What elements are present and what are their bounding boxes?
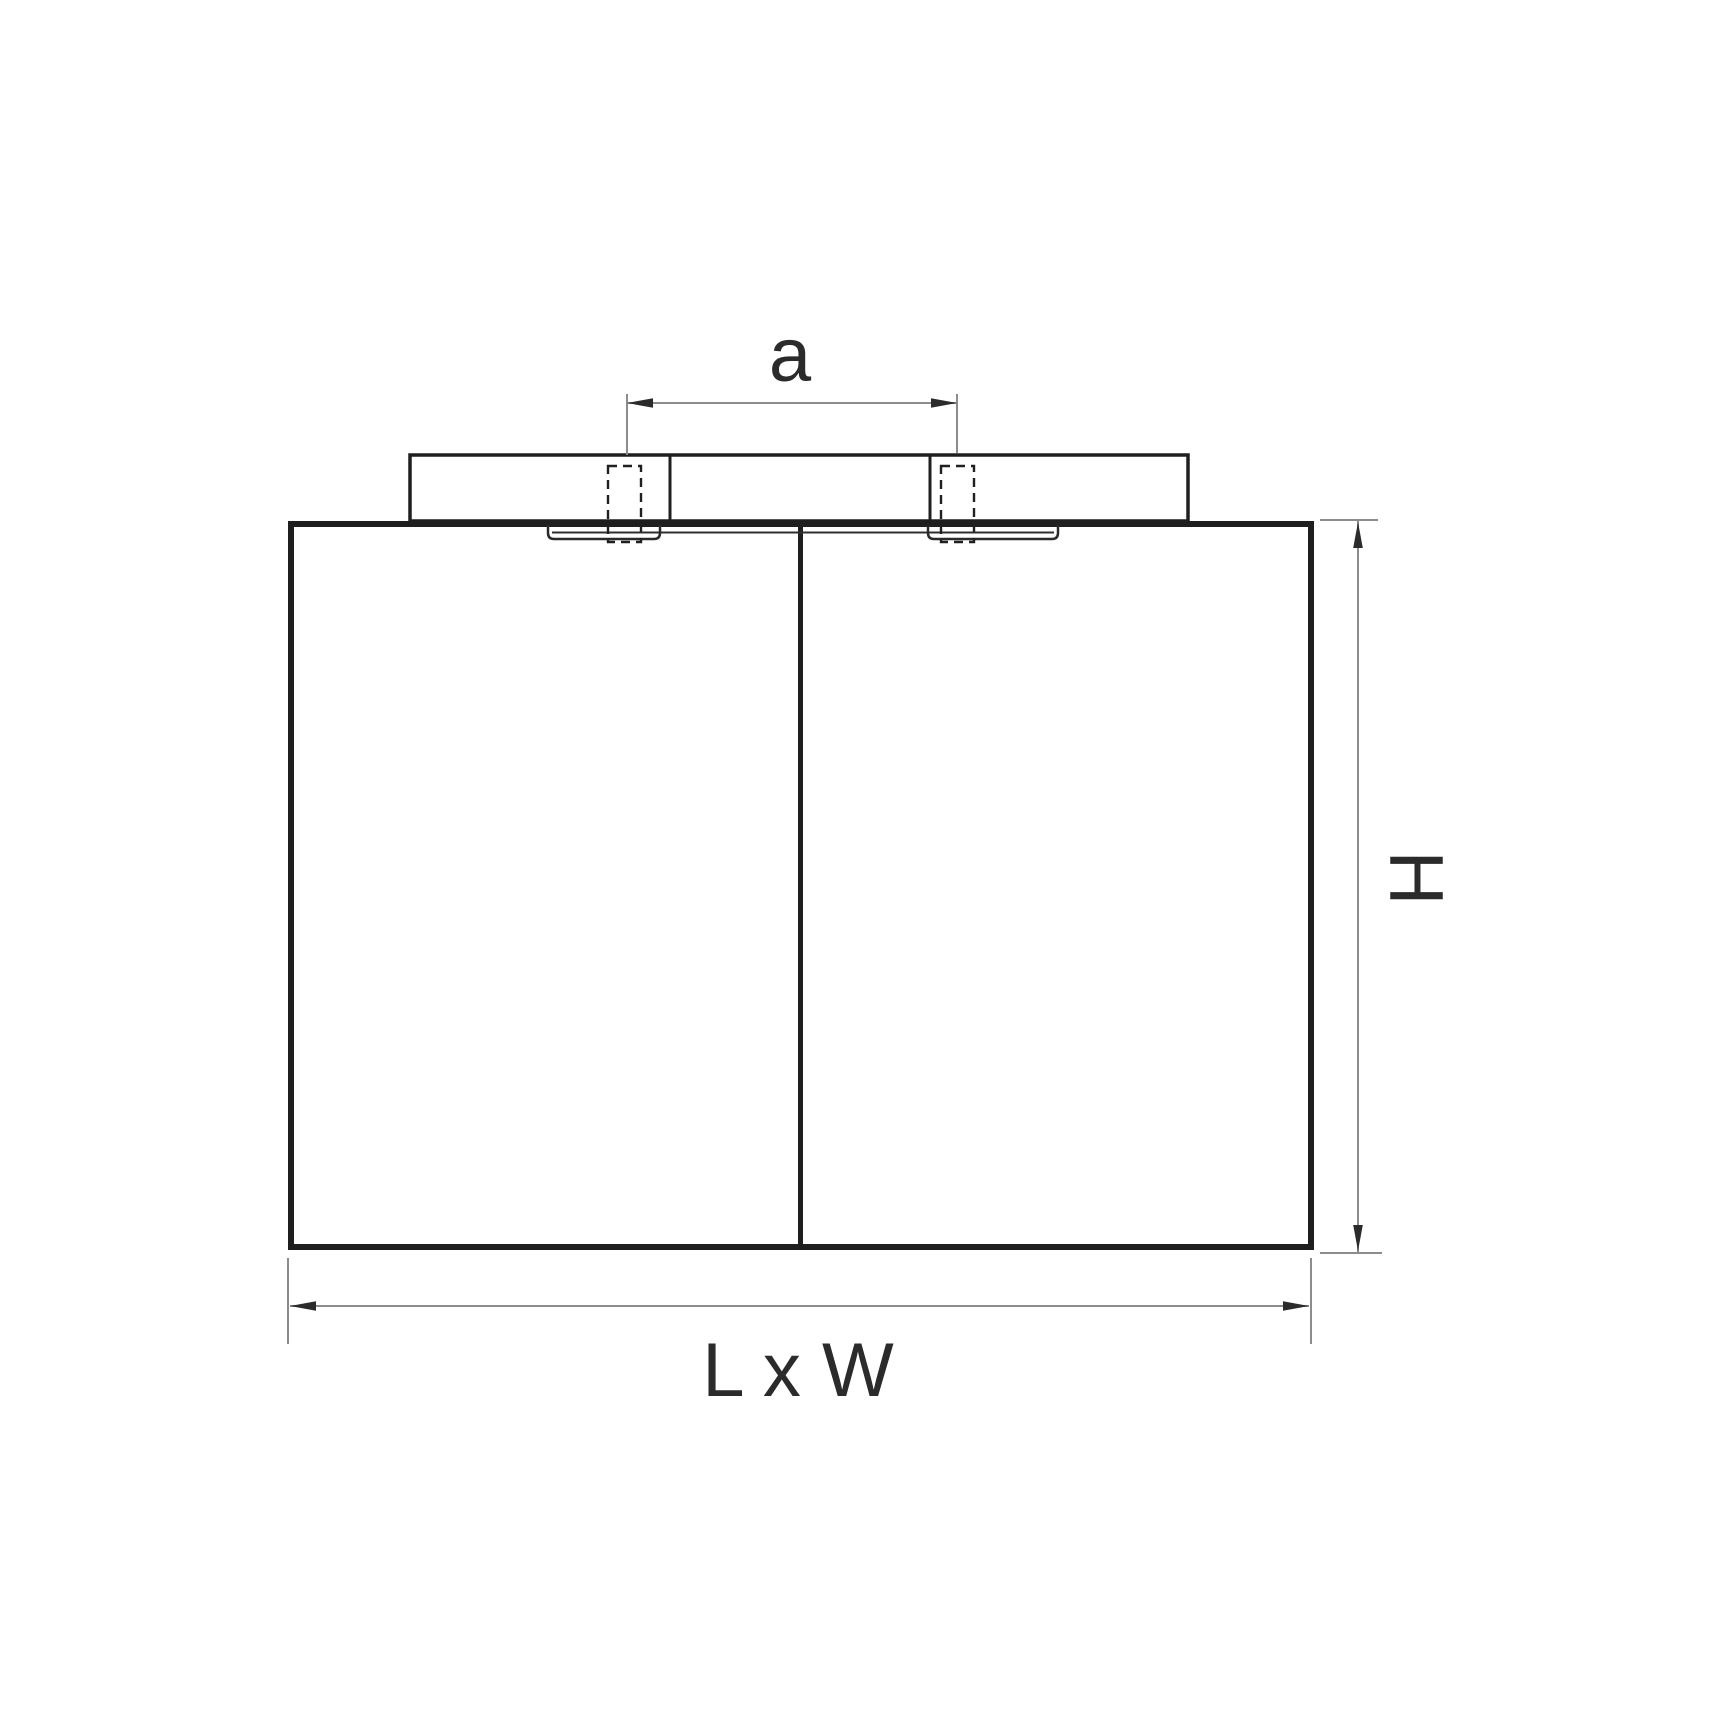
- dim-lw-arrow-right: [1283, 1301, 1309, 1311]
- dim-lw-label: L x W: [702, 1328, 894, 1413]
- luminaire-dimension-diagram: a H L x W: [0, 0, 1720, 1720]
- fixture-body: [291, 524, 1311, 1247]
- dim-h-label: H: [1373, 851, 1458, 906]
- dimension-lw: L x W: [288, 1258, 1311, 1413]
- mounting-screws: [608, 466, 974, 542]
- dim-a-label: a: [769, 313, 812, 398]
- technical-drawing: a H L x W: [0, 0, 1720, 1720]
- dim-a-arrow-right: [931, 398, 957, 408]
- screw-left-hidden-outline: [608, 466, 641, 542]
- dim-a-arrow-left: [627, 398, 653, 408]
- ceiling-mount-bar: [410, 455, 1188, 521]
- dim-lw-arrow-left: [290, 1301, 316, 1311]
- dim-h-arrow-bottom: [1353, 1225, 1363, 1251]
- dim-h-arrow-top: [1353, 522, 1363, 548]
- dimension-a: a: [627, 313, 957, 455]
- screw-right-hidden-outline: [941, 466, 974, 542]
- dimension-h: H: [1320, 520, 1458, 1253]
- hatched-mounting-bar: [410, 455, 1188, 521]
